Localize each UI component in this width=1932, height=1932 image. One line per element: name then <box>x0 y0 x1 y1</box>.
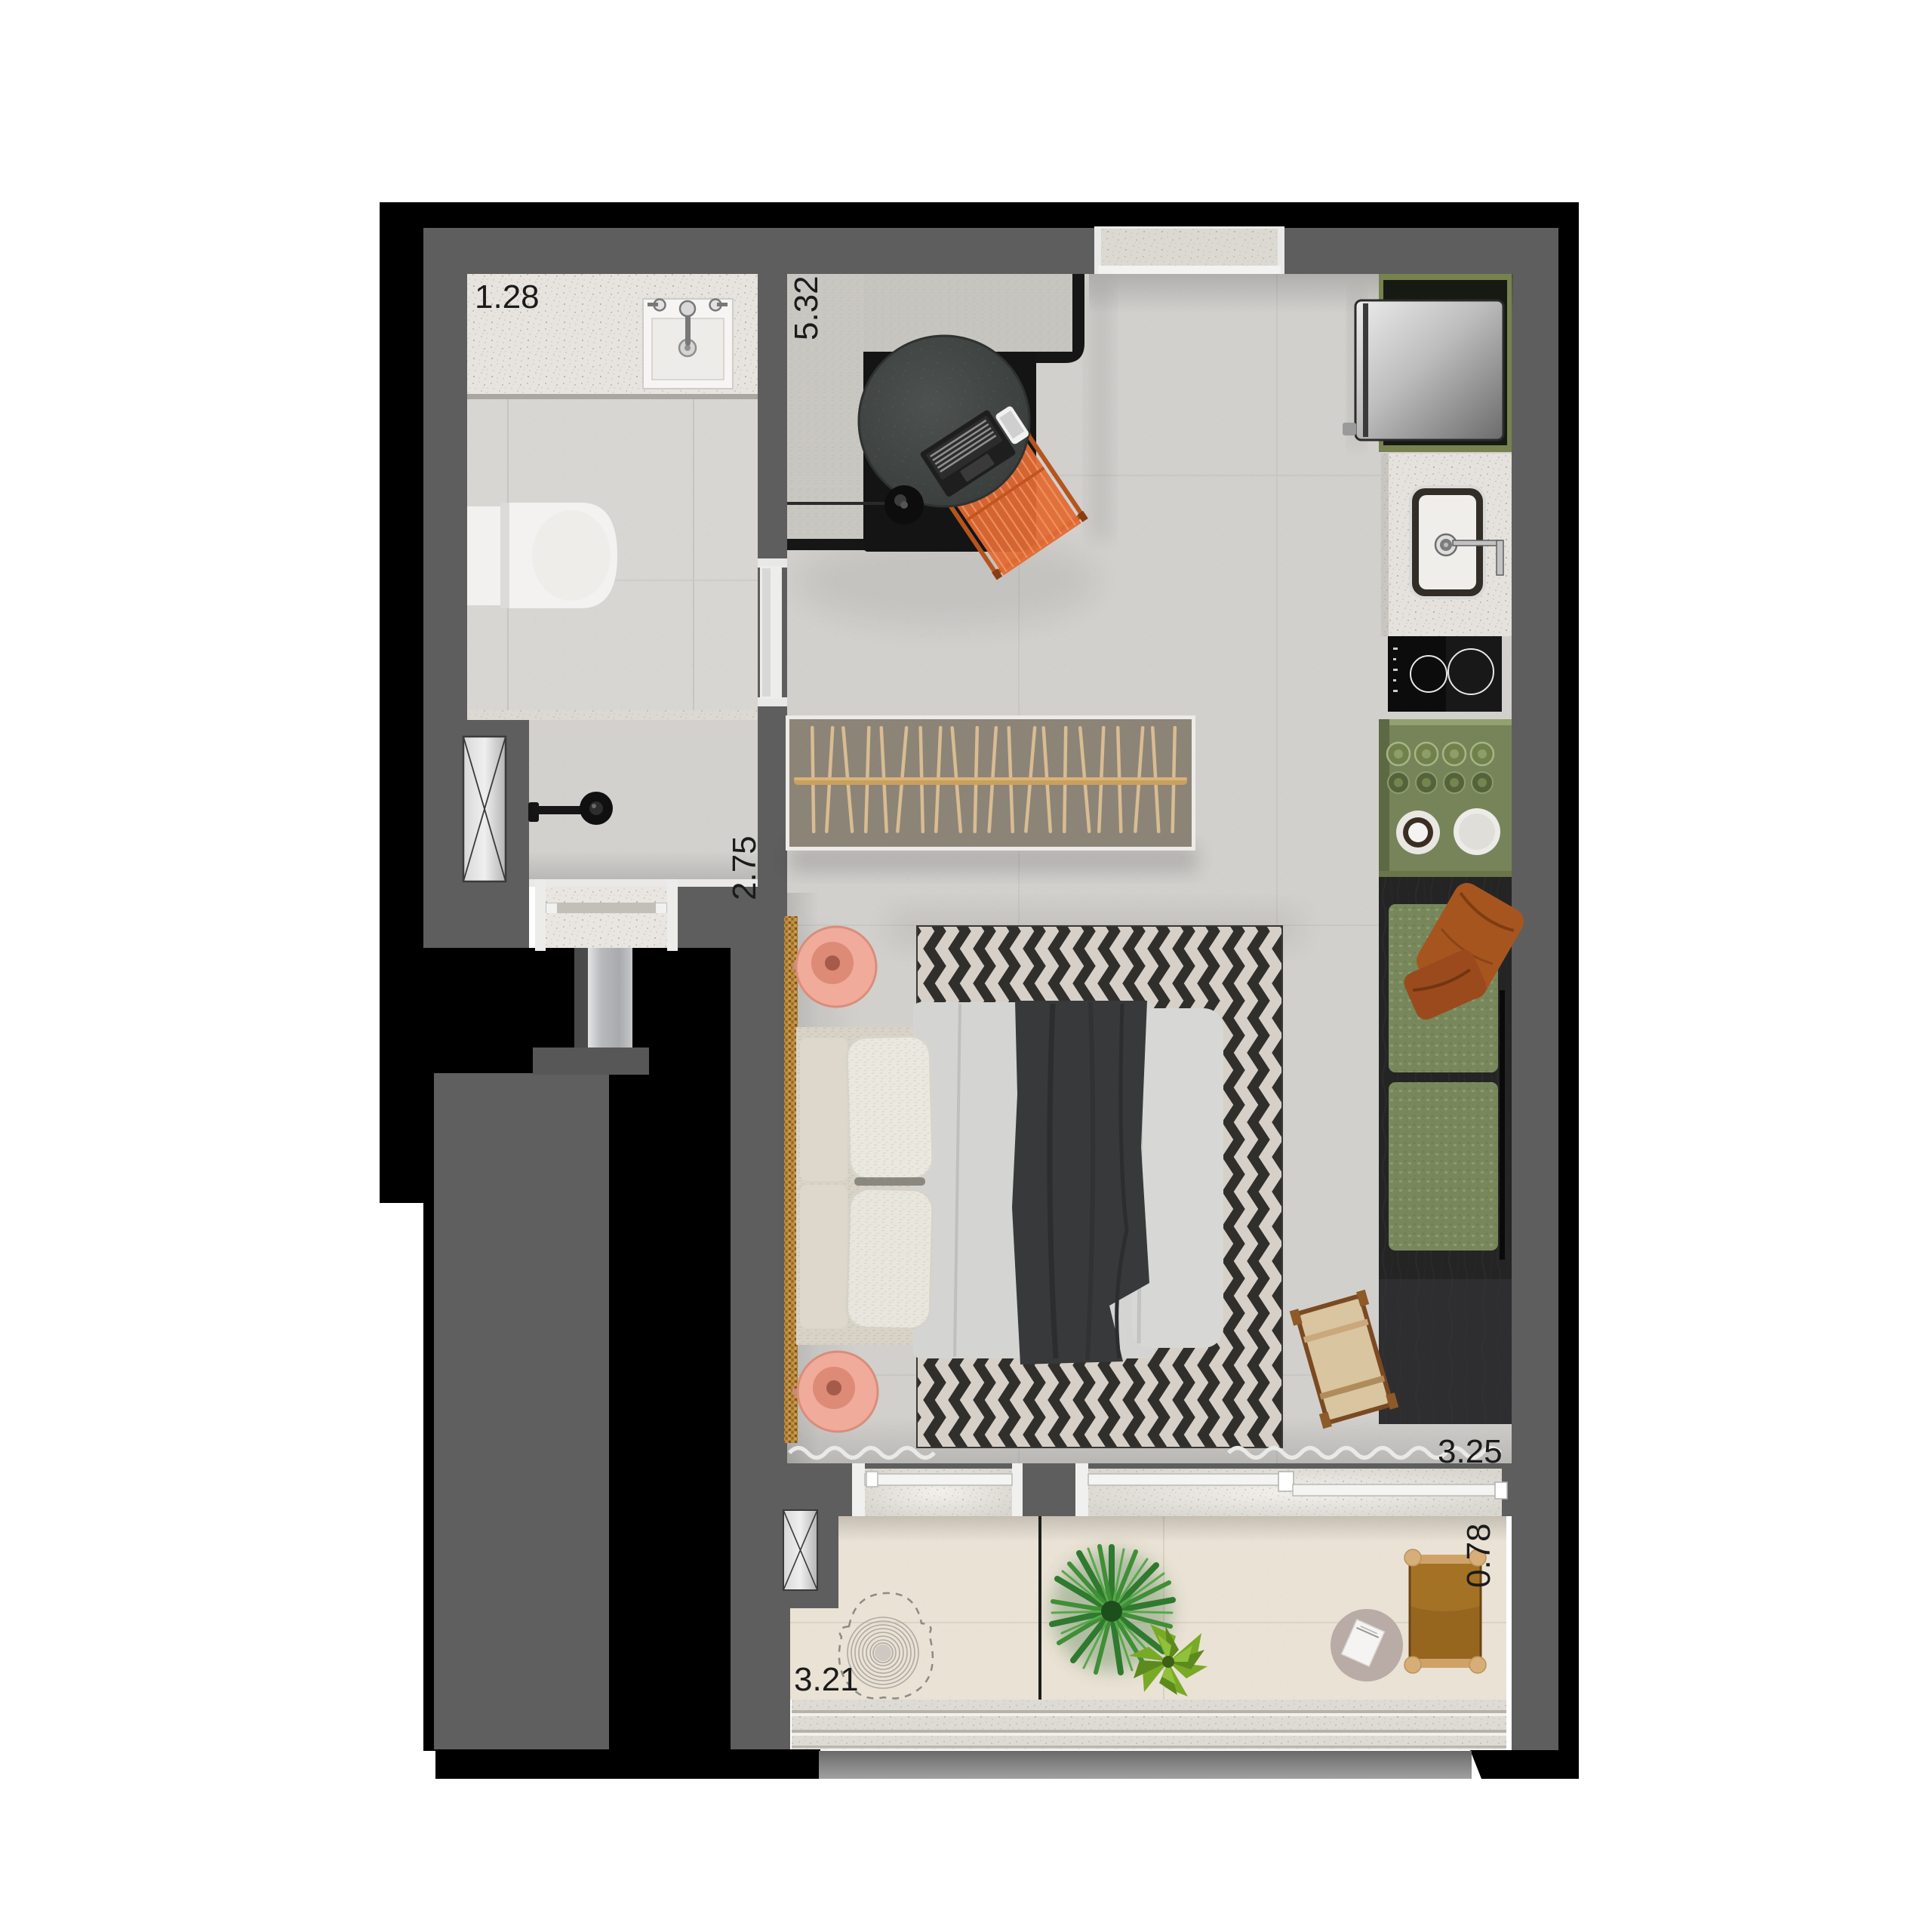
svg-text:3.25: 3.25 <box>1438 1433 1503 1470</box>
svg-text:5.32: 5.32 <box>788 275 825 340</box>
svg-text:0.78: 0.78 <box>1460 1523 1497 1588</box>
svg-text:1.28: 1.28 <box>475 278 540 315</box>
svg-text:2.75: 2.75 <box>726 835 763 900</box>
svg-text:3.21: 3.21 <box>794 1661 859 1698</box>
